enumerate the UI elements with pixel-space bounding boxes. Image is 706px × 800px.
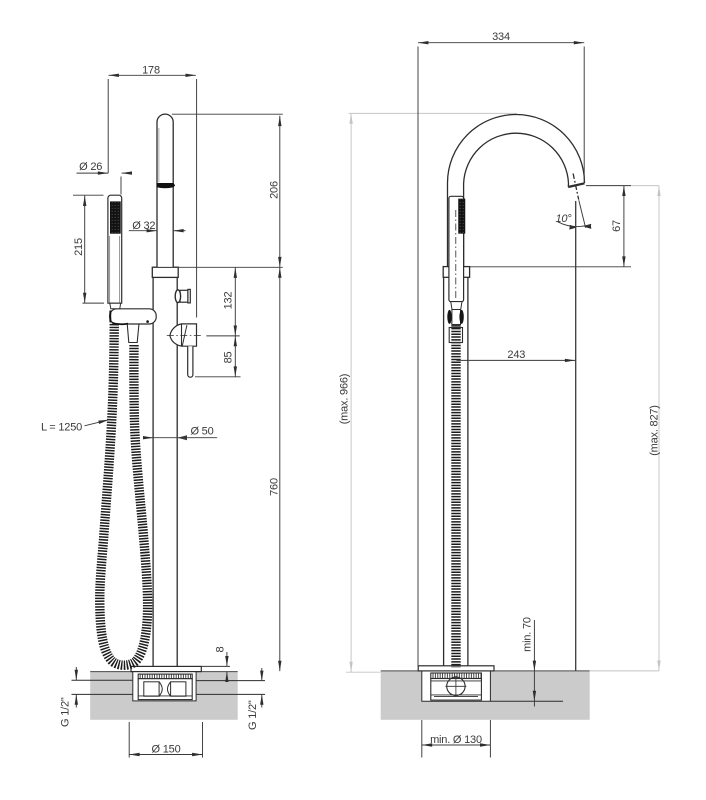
svg-text:206: 206 <box>268 181 280 199</box>
svg-text:G 1/2": G 1/2" <box>247 700 259 730</box>
svg-text:85: 85 <box>222 352 234 364</box>
svg-text:min. 70: min. 70 <box>522 617 534 652</box>
svg-text:132: 132 <box>223 292 235 310</box>
svg-text:Ø 32: Ø 32 <box>132 220 155 232</box>
svg-text:(max. 966): (max. 966) <box>339 374 351 425</box>
svg-text:L = 1250: L = 1250 <box>41 421 82 433</box>
svg-text:8: 8 <box>215 646 227 652</box>
svg-text:760: 760 <box>268 478 280 496</box>
svg-text:Ø 150: Ø 150 <box>152 743 181 755</box>
svg-text:G 1/2": G 1/2" <box>60 697 72 727</box>
svg-text:215: 215 <box>73 238 85 256</box>
svg-text:Ø 26: Ø 26 <box>79 161 102 173</box>
svg-text:334: 334 <box>492 31 510 43</box>
svg-text:min. Ø 130: min. Ø 130 <box>430 734 482 746</box>
svg-text:178: 178 <box>142 64 160 76</box>
svg-text:67: 67 <box>611 220 623 232</box>
svg-text:243: 243 <box>507 349 525 361</box>
svg-text:10°: 10° <box>555 213 572 225</box>
svg-text:(max. 827): (max. 827) <box>648 405 660 456</box>
svg-text:Ø 50: Ø 50 <box>190 426 213 438</box>
